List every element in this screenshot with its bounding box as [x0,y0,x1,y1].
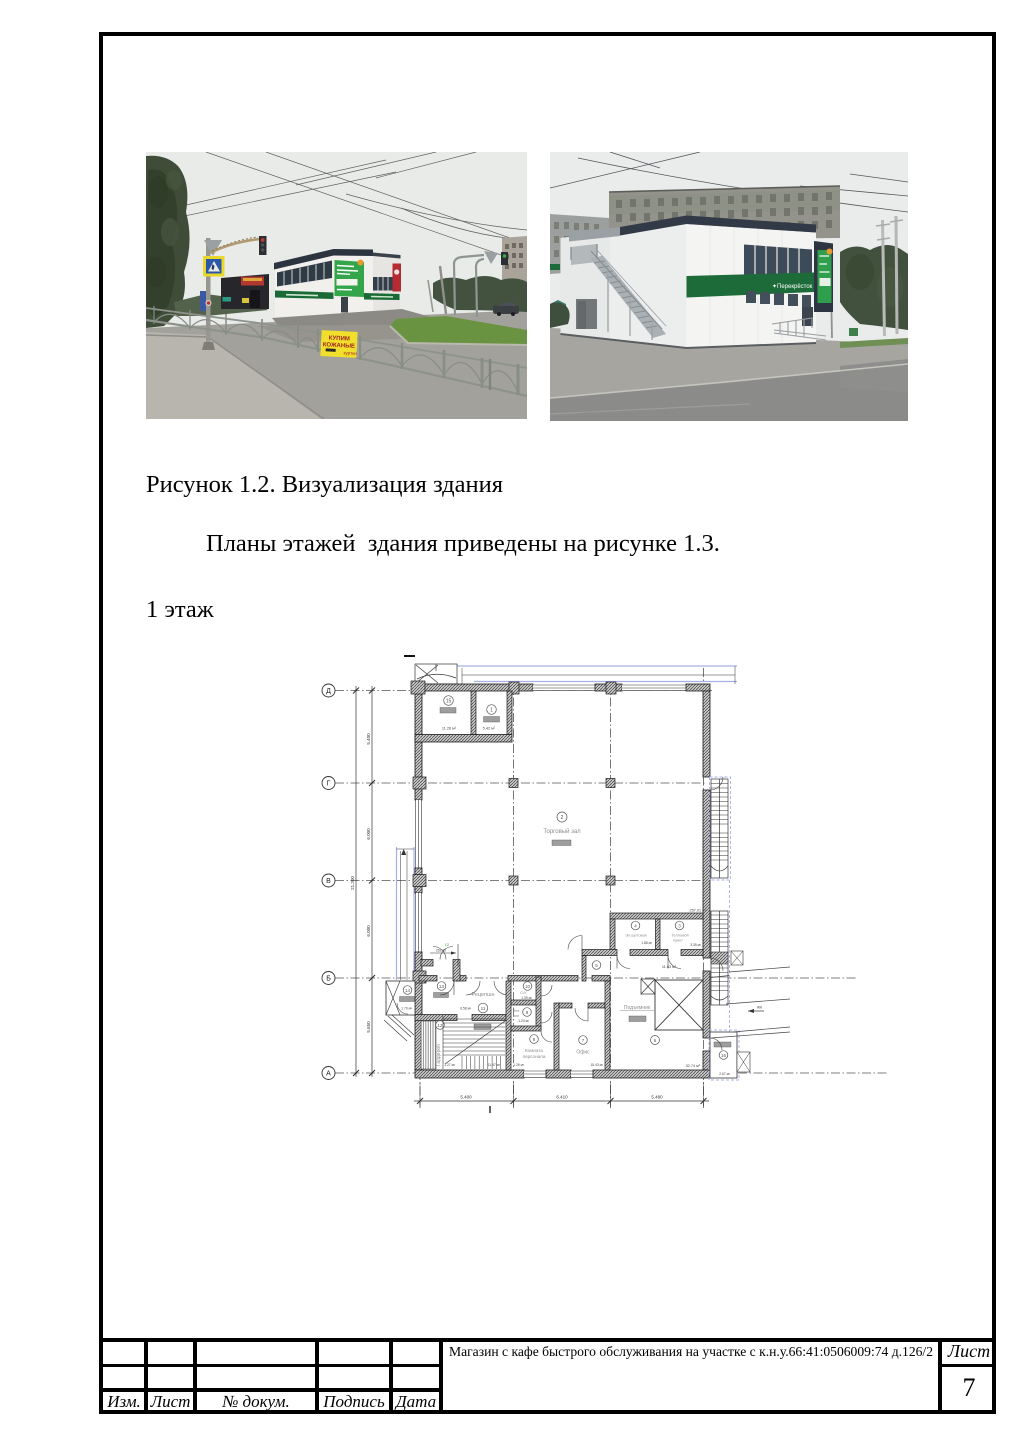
svg-text:зон: зон [513,1013,519,1018]
svg-text:пункт: пункт [673,938,683,943]
svg-text:✦Перекрёсток: ✦Перекрёсток [772,283,813,290]
svg-text:6.000: 6.000 [366,828,371,840]
svg-text:КУПИМ: КУПИМ [329,335,350,342]
svg-text:6.000: 6.000 [366,925,371,937]
svg-text:5.400: 5.400 [366,733,371,745]
svg-text:2: 2 [561,815,564,821]
svg-text:Гардероб: Гардероб [436,1044,442,1066]
svg-text:15.43 м²: 15.43 м² [590,1063,603,1067]
svg-text:1.24 м²: 1.24 м² [518,1019,530,1023]
svg-text:Б: Б [326,976,331,983]
svg-text:куртки: куртки [343,350,357,356]
svg-text:1: 1 [490,708,493,714]
svg-text:1.39 м²: 1.39 м² [521,996,533,1000]
svg-text:5.480: 5.480 [651,1095,663,1100]
svg-text:10: 10 [525,984,531,989]
svg-text:6.410: 6.410 [556,1095,568,1100]
svg-text:5.650: 5.650 [366,1021,371,1033]
svg-text:1.88 м²: 1.88 м² [641,941,653,945]
svg-text:11: 11 [481,1006,486,1011]
svg-text:1.70 м²: 1.70 м² [401,1007,413,1011]
svg-text:Торговый зал: Торговый зал [543,828,581,835]
svg-text:15: 15 [446,699,452,705]
svg-text:12: 12 [445,943,449,947]
svg-text:5.42 м²: 5.42 м² [483,727,496,731]
svg-text:Рецепшн: Рецепшн [471,992,494,998]
svg-text:С/У: С/У [520,990,527,995]
svg-text:14: 14 [405,988,411,993]
svg-text:32.74 м²: 32.74 м² [686,1064,701,1068]
svg-text:11.47 м²: 11.47 м² [488,1063,501,1067]
svg-text:262.35: 262.35 [436,949,446,953]
svg-text:Подъемник: Подъемник [624,1005,651,1011]
svg-text:2.67 м²: 2.67 м² [719,1072,731,1076]
svg-text:21.300: 21.300 [350,876,355,890]
svg-text:16: 16 [721,1053,727,1058]
svg-text:13: 13 [439,984,445,989]
svg-text:5.400: 5.400 [460,1095,472,1100]
svg-text:3.35 м²: 3.35 м² [690,943,702,947]
svg-text:Г: Г [327,781,331,788]
svg-text:В: В [326,878,331,885]
svg-text:6.58 м²: 6.58 м² [460,1007,472,1011]
svg-text:Д: Д [326,688,331,695]
svg-text:А: А [326,1071,331,1078]
svg-text:257.01 м²: 257.01 м² [689,909,706,913]
svg-text:Офис: Офис [576,1050,590,1056]
svg-text:11.26 м²: 11.26 м² [442,727,457,731]
svg-text:12: 12 [437,1023,443,1028]
svg-text:персонала: персонала [523,1054,546,1059]
svg-text:Эл.щитовая: Эл.щитовая [625,933,647,938]
svg-text:Комната: Комната [525,1048,543,1053]
svg-text:1.26 м²: 1.26 м² [513,1063,525,1067]
svg-text:ЖК: ЖК [757,1006,763,1010]
